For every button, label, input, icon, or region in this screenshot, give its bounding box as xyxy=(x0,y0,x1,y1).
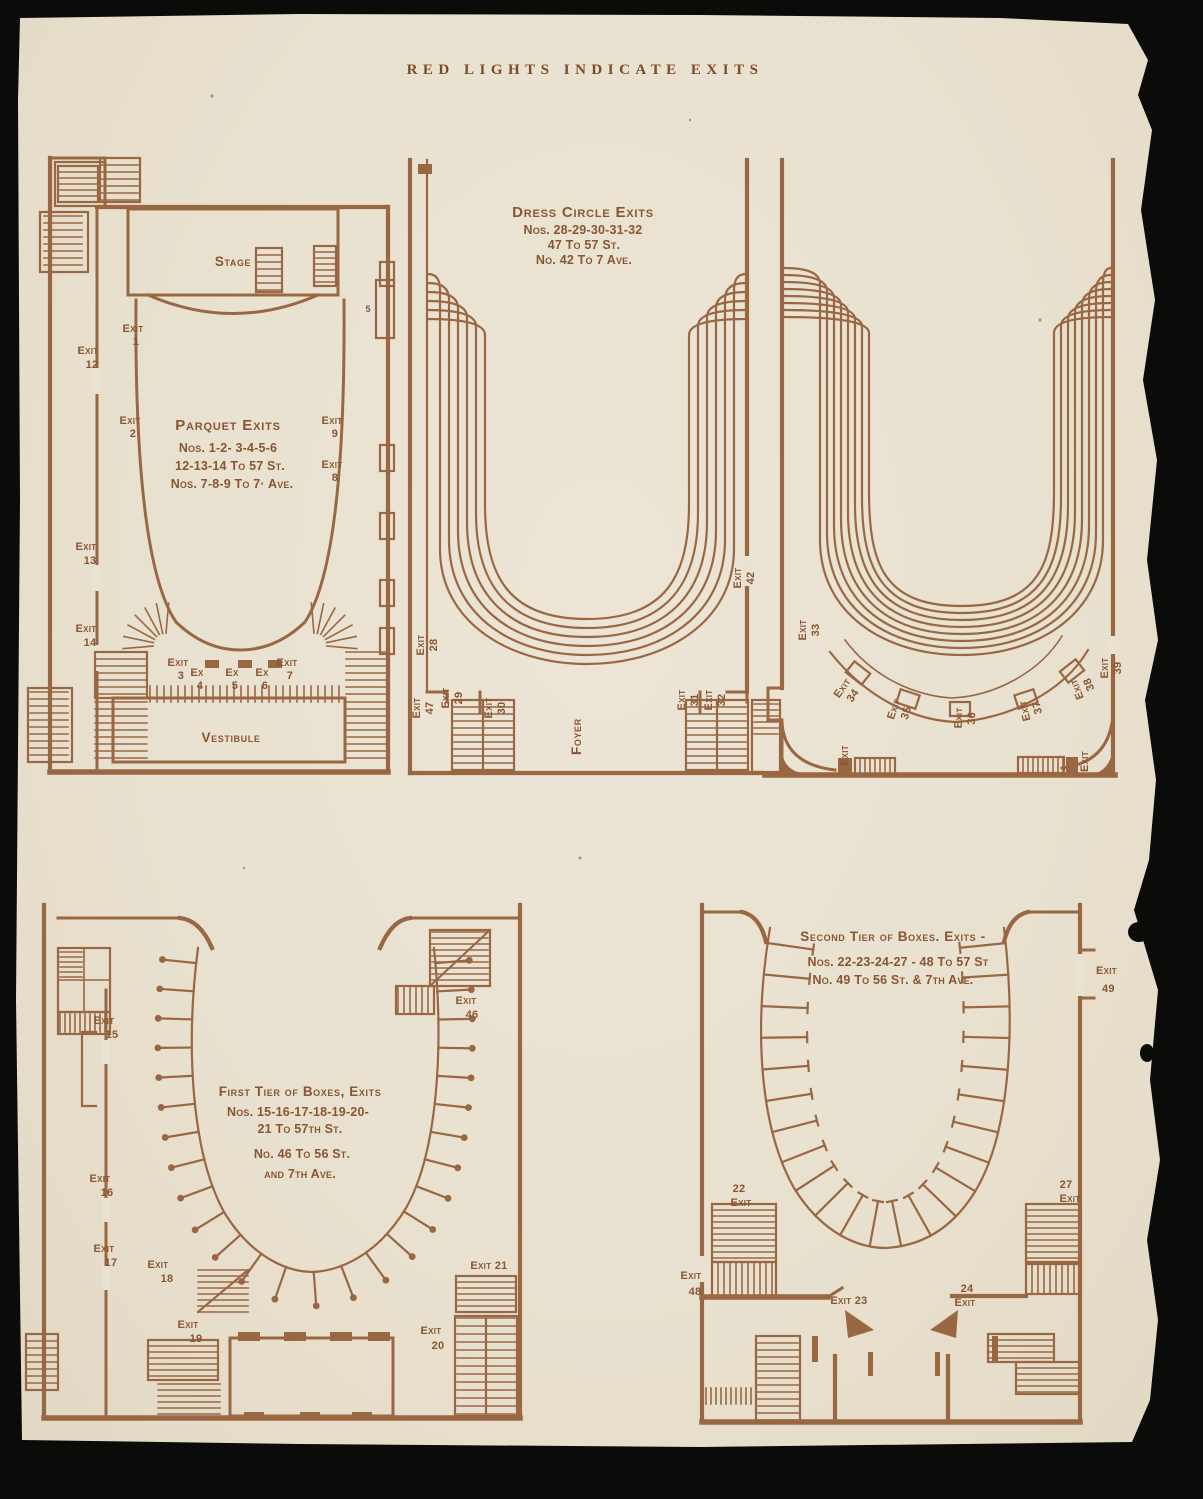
stair-hatch xyxy=(256,248,282,292)
seating-curves xyxy=(428,274,746,664)
door-sill xyxy=(284,1332,306,1341)
door-sill xyxy=(330,1332,352,1341)
door-opening xyxy=(102,1198,110,1222)
door-sill xyxy=(418,164,432,174)
paper-speck xyxy=(1038,318,1041,321)
exit-24-word: Exit xyxy=(955,1297,976,1309)
stair-hatch xyxy=(706,1388,756,1404)
scan-background: RED LIGHTS INDICATE EXITS xyxy=(0,0,1203,1499)
exit-35-label: Exit 35 xyxy=(885,697,915,725)
exit-31-num: 31 xyxy=(689,694,701,707)
parquet-line1: Nos. 1-2- 3-4-5-6 xyxy=(179,441,277,455)
lobby-outline xyxy=(230,1338,393,1416)
second-tier-title: Second Tier of Boxes. Exits - xyxy=(800,929,985,944)
torn-edge-notch xyxy=(1140,1044,1154,1062)
page-title: RED LIGHTS INDICATE EXITS xyxy=(407,62,764,78)
parquet-line3: Nos. 7-8-9 To 7· Ave. xyxy=(171,477,294,491)
vestibule-label: Vestibule xyxy=(202,730,261,745)
door-number-label: 5 xyxy=(365,304,370,314)
exit-46-word: Exit xyxy=(456,995,477,1007)
seating-curves xyxy=(784,268,1111,655)
stair-hatch xyxy=(398,988,428,1012)
stage-door xyxy=(376,280,394,338)
paper-speck xyxy=(243,867,245,869)
dress-circle-line3: No. 42 To 7 Ave. xyxy=(536,253,632,267)
dress-circle-title: Dress Circle Exits xyxy=(512,204,654,221)
floor-plans-canvas: RED LIGHTS INDICATE EXITS xyxy=(0,0,1203,1499)
exit-38-label: Exit 38 xyxy=(1068,672,1099,701)
corner-exit-right-text: Exit xyxy=(1079,751,1091,772)
parquet-plan: Stage Vestibule 5 Parquet Exits Nos. 1-2… xyxy=(28,158,394,772)
door-opening xyxy=(93,565,101,591)
exit-48-word: Exit xyxy=(681,1270,702,1282)
exit-30-word: Exit xyxy=(483,698,495,719)
exit-33-num: 33 xyxy=(810,624,822,637)
exit-20-word: Exit xyxy=(421,1325,442,1337)
door-opening xyxy=(102,1266,110,1290)
exit-32-label: Exit 32 xyxy=(703,690,728,711)
exit-12-word: Exit xyxy=(78,345,99,357)
exit-4-num: 4 xyxy=(197,680,204,692)
exit-5-num: 5 xyxy=(232,680,238,692)
stair-hatch xyxy=(95,652,147,698)
exit-27-num: 27 xyxy=(1060,1179,1073,1191)
door-bracket xyxy=(82,1032,96,1106)
exit-1-word: Exit xyxy=(123,323,144,335)
exit-36-label: Exit 36 xyxy=(953,707,979,729)
exit-37-num: 37 xyxy=(1030,700,1045,715)
door-sill xyxy=(238,660,252,668)
exit-47-word: Exit xyxy=(411,698,423,719)
exit-21-label: Exit 21 xyxy=(470,1260,507,1272)
exit-37-label: Exit 37 xyxy=(1017,696,1046,722)
door-sill xyxy=(205,660,219,668)
exit-8-word: Exit xyxy=(322,459,343,471)
stair-hatch xyxy=(60,952,82,977)
dress-circle-line2: 47 To 57 St. xyxy=(548,238,621,252)
first-tier-line4: and 7th Ave. xyxy=(264,1167,336,1181)
stage-label: Stage xyxy=(215,254,251,269)
door-post xyxy=(935,1352,940,1376)
stage-outline xyxy=(128,209,338,295)
paper-speck xyxy=(579,857,582,860)
exit-15-num: 15 xyxy=(106,1029,119,1041)
upper-tier-plan: Exit 33 Exit 34 Exit 35 Exit 36 Exit 3 xyxy=(765,160,1124,776)
exit-3-num: 3 xyxy=(178,670,184,682)
exit-42-word: Exit xyxy=(732,568,744,589)
exit-12-num: 12 xyxy=(86,359,99,371)
door-opening xyxy=(1076,954,1084,996)
exit-22-num: 22 xyxy=(733,1183,746,1195)
exit-17-word: Exit xyxy=(94,1243,115,1255)
exit-15-word: Exit xyxy=(94,1015,115,1027)
stair-hatch xyxy=(712,1262,776,1296)
stair-hatch xyxy=(712,1204,776,1262)
exit-6-num: 6 xyxy=(262,680,268,692)
stair-fill xyxy=(1066,757,1078,773)
door-sill xyxy=(238,1332,260,1341)
corner-fan-stairs xyxy=(311,603,357,649)
exit-18-num: 18 xyxy=(161,1273,174,1285)
exit-20-num: 20 xyxy=(432,1340,445,1352)
exit-47-num: 47 xyxy=(424,702,436,715)
stair-hatch xyxy=(456,1276,516,1312)
stage-apron xyxy=(148,295,318,314)
exit-47-label: Exit 47 xyxy=(411,698,436,719)
exit-19-num: 19 xyxy=(190,1333,203,1345)
second-tier-plan: Second Tier of Boxes. Exits - Nos. 22-23… xyxy=(681,905,1117,1422)
exit-16-word: Exit xyxy=(90,1173,111,1185)
exit-33-label: Exit 33 xyxy=(797,620,822,641)
exit-49-num: 49 xyxy=(1102,983,1115,995)
stair-hatch xyxy=(855,758,895,774)
door-opening xyxy=(1109,636,1118,654)
exit-9-num: 9 xyxy=(332,428,338,440)
exit-29-label: Exit 29 xyxy=(440,688,465,709)
aisle-steps xyxy=(150,686,339,702)
door-opening xyxy=(102,1040,110,1064)
exit-9-word: Exit xyxy=(322,415,343,427)
stair-hatch xyxy=(314,246,336,286)
door-post xyxy=(812,1336,818,1362)
exit-5-word: Ex xyxy=(225,667,239,679)
corner-exit-right-label: Exit xyxy=(1079,751,1091,772)
door-sill xyxy=(352,1412,372,1420)
first-tier-plan: First Tier of Boxes, Exits Nos. 15-16-17… xyxy=(26,905,520,1420)
exit-1-num: 1 xyxy=(133,336,139,348)
first-tier-line2: 21 To 57th St. xyxy=(258,1122,343,1136)
torn-edge-notch xyxy=(1128,922,1150,942)
exit-19-word: Exit xyxy=(178,1319,199,1331)
door-sill xyxy=(300,1412,320,1420)
exit-17-num: 17 xyxy=(105,1257,118,1269)
second-tier-line2: No. 49 To 56 St. & 7th Ave. xyxy=(813,973,974,987)
parquet-floor-boundary xyxy=(136,300,344,650)
exit-39-word: Exit xyxy=(1099,658,1111,679)
exit-30-num: 30 xyxy=(496,702,508,715)
stair-hatch xyxy=(148,1340,218,1380)
exit-22-word: Exit xyxy=(731,1197,752,1209)
exit-24-num: 24 xyxy=(961,1283,974,1295)
exit-42-num: 42 xyxy=(745,572,757,585)
door-opening xyxy=(93,368,101,394)
corner-exit-left-text: Exit xyxy=(839,745,851,766)
second-tier-line1: Nos. 22-23-24-27 - 48 To 57 St xyxy=(808,955,989,969)
door-swing xyxy=(845,1310,874,1338)
wing-wall xyxy=(1004,912,1028,942)
exit-23-label: Exit 23 xyxy=(830,1295,867,1307)
exit-29-word: Exit xyxy=(440,688,452,709)
corner-fan-stairs xyxy=(123,603,169,649)
exit-16-num: 16 xyxy=(101,1187,114,1199)
door-swing xyxy=(930,1310,958,1338)
exit-39-num: 39 xyxy=(1112,662,1124,675)
exit-31-word: Exit xyxy=(676,690,688,711)
exit-2-num: 2 xyxy=(130,428,136,440)
stair-hatch xyxy=(346,652,388,694)
parquet-line2: 12-13-14 To 57 St. xyxy=(175,459,285,473)
stair-hatch xyxy=(58,166,98,202)
wing-wall xyxy=(742,912,766,942)
stair-hatch xyxy=(1016,1362,1080,1394)
stair-hatch xyxy=(756,1336,800,1422)
exit-31-label: Exit 31 xyxy=(676,690,701,711)
first-tier-title: First Tier of Boxes, Exits xyxy=(219,1084,382,1099)
door-sill xyxy=(244,1412,264,1420)
exit-28-word: Exit xyxy=(415,635,427,656)
exit-49-word: Exit xyxy=(1096,965,1117,977)
box-partition-rails xyxy=(761,943,1009,1247)
stair-hatch xyxy=(1018,757,1064,773)
exit-14-num: 14 xyxy=(84,637,97,649)
first-tier-line3: No. 46 To 56 St. xyxy=(254,1147,350,1161)
exit-36-word: Exit xyxy=(953,707,966,728)
torn-edge-notch xyxy=(1142,88,1160,114)
stair-hatch xyxy=(1026,1264,1080,1294)
wing-wall xyxy=(180,918,212,948)
exit-2-word: Exit xyxy=(120,415,141,427)
paper-speck xyxy=(210,94,213,97)
corner-wall xyxy=(782,722,835,770)
wing-wall xyxy=(380,918,410,948)
exit-18-word: Exit xyxy=(148,1259,169,1271)
paper-sheet: RED LIGHTS INDICATE EXITS xyxy=(0,0,1203,1499)
box-rail-inner xyxy=(845,636,1062,698)
stair-hatch xyxy=(346,702,388,758)
exit-13-word: Exit xyxy=(76,541,97,553)
door-sill xyxy=(368,1332,390,1341)
torn-edge-notch xyxy=(1150,385,1166,407)
exit-33-word: Exit xyxy=(797,620,809,641)
side-room xyxy=(40,212,88,272)
exit-28-num: 28 xyxy=(428,639,440,652)
dress-circle-plan: Dress Circle Exits Nos. 28-29-30-31-32 4… xyxy=(410,160,780,773)
stair-hatch xyxy=(158,1384,220,1414)
foyer-text: Foyer xyxy=(569,718,584,755)
exit-4-word: Ex xyxy=(190,667,204,679)
exit-32-num: 32 xyxy=(716,694,728,707)
corner-exit-left-label: Exit xyxy=(839,745,851,766)
exit-36-num: 36 xyxy=(966,712,978,725)
exit-48-num: 48 xyxy=(689,1286,702,1298)
exit-7-word: Exit xyxy=(277,657,298,669)
parquet-title: Parquet Exits xyxy=(175,417,280,434)
exit-8-num: 8 xyxy=(332,472,338,484)
first-tier-line1: Nos. 15-16-17-18-19-20- xyxy=(227,1105,369,1119)
exit-13-num: 13 xyxy=(84,555,97,567)
exit-3-word: Exit xyxy=(168,657,189,669)
door-post xyxy=(868,1352,873,1376)
exit-7-num: 7 xyxy=(287,670,293,682)
stair-hatch xyxy=(1026,1204,1080,1262)
exit-14-word: Exit xyxy=(76,623,97,635)
torn-edge-notch xyxy=(1146,688,1166,714)
exit-32-word: Exit xyxy=(703,690,715,711)
exit-6-word: Ex xyxy=(255,667,269,679)
stair-hatch xyxy=(95,702,147,758)
dress-circle-line1: Nos. 28-29-30-31-32 xyxy=(524,223,643,237)
exit-27-word: Exit xyxy=(1060,1193,1081,1205)
exit-29-num: 29 xyxy=(453,692,465,705)
paper-speck xyxy=(689,119,691,121)
exit-46-num: 46 xyxy=(466,1009,479,1021)
foyer-label: Foyer xyxy=(569,718,584,755)
torn-edge-notch xyxy=(1152,1205,1172,1233)
